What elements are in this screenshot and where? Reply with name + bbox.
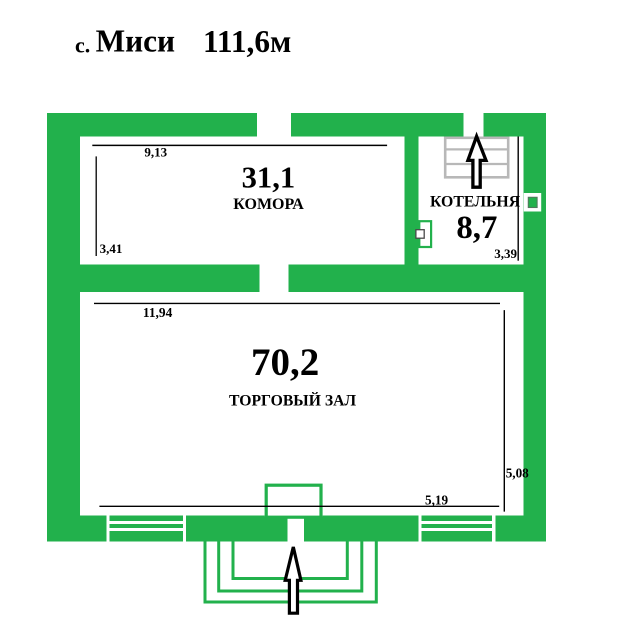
svg-text:КОТЕЛЬНЯ: КОТЕЛЬНЯ bbox=[430, 194, 521, 211]
svg-text:5,08: 5,08 bbox=[506, 466, 529, 481]
svg-text:ТОРГОВЫЙ ЗАЛ: ТОРГОВЫЙ ЗАЛ bbox=[229, 390, 356, 409]
svg-text:8,7: 8,7 bbox=[456, 210, 497, 246]
svg-text:с.: с. bbox=[75, 33, 90, 58]
svg-text:11,94: 11,94 bbox=[143, 305, 173, 320]
svg-text:3,41: 3,41 bbox=[100, 241, 123, 256]
svg-text:КОМОРА: КОМОРА bbox=[233, 196, 304, 213]
svg-text:70,2: 70,2 bbox=[251, 341, 319, 384]
svg-text:31,1: 31,1 bbox=[242, 161, 296, 195]
svg-text:3,39: 3,39 bbox=[494, 246, 517, 261]
svg-text:9,13: 9,13 bbox=[144, 145, 167, 160]
svg-text:Миси: Миси bbox=[96, 24, 176, 59]
svg-text:111,6м: 111,6м bbox=[203, 24, 291, 59]
svg-text:5,19: 5,19 bbox=[425, 492, 448, 507]
